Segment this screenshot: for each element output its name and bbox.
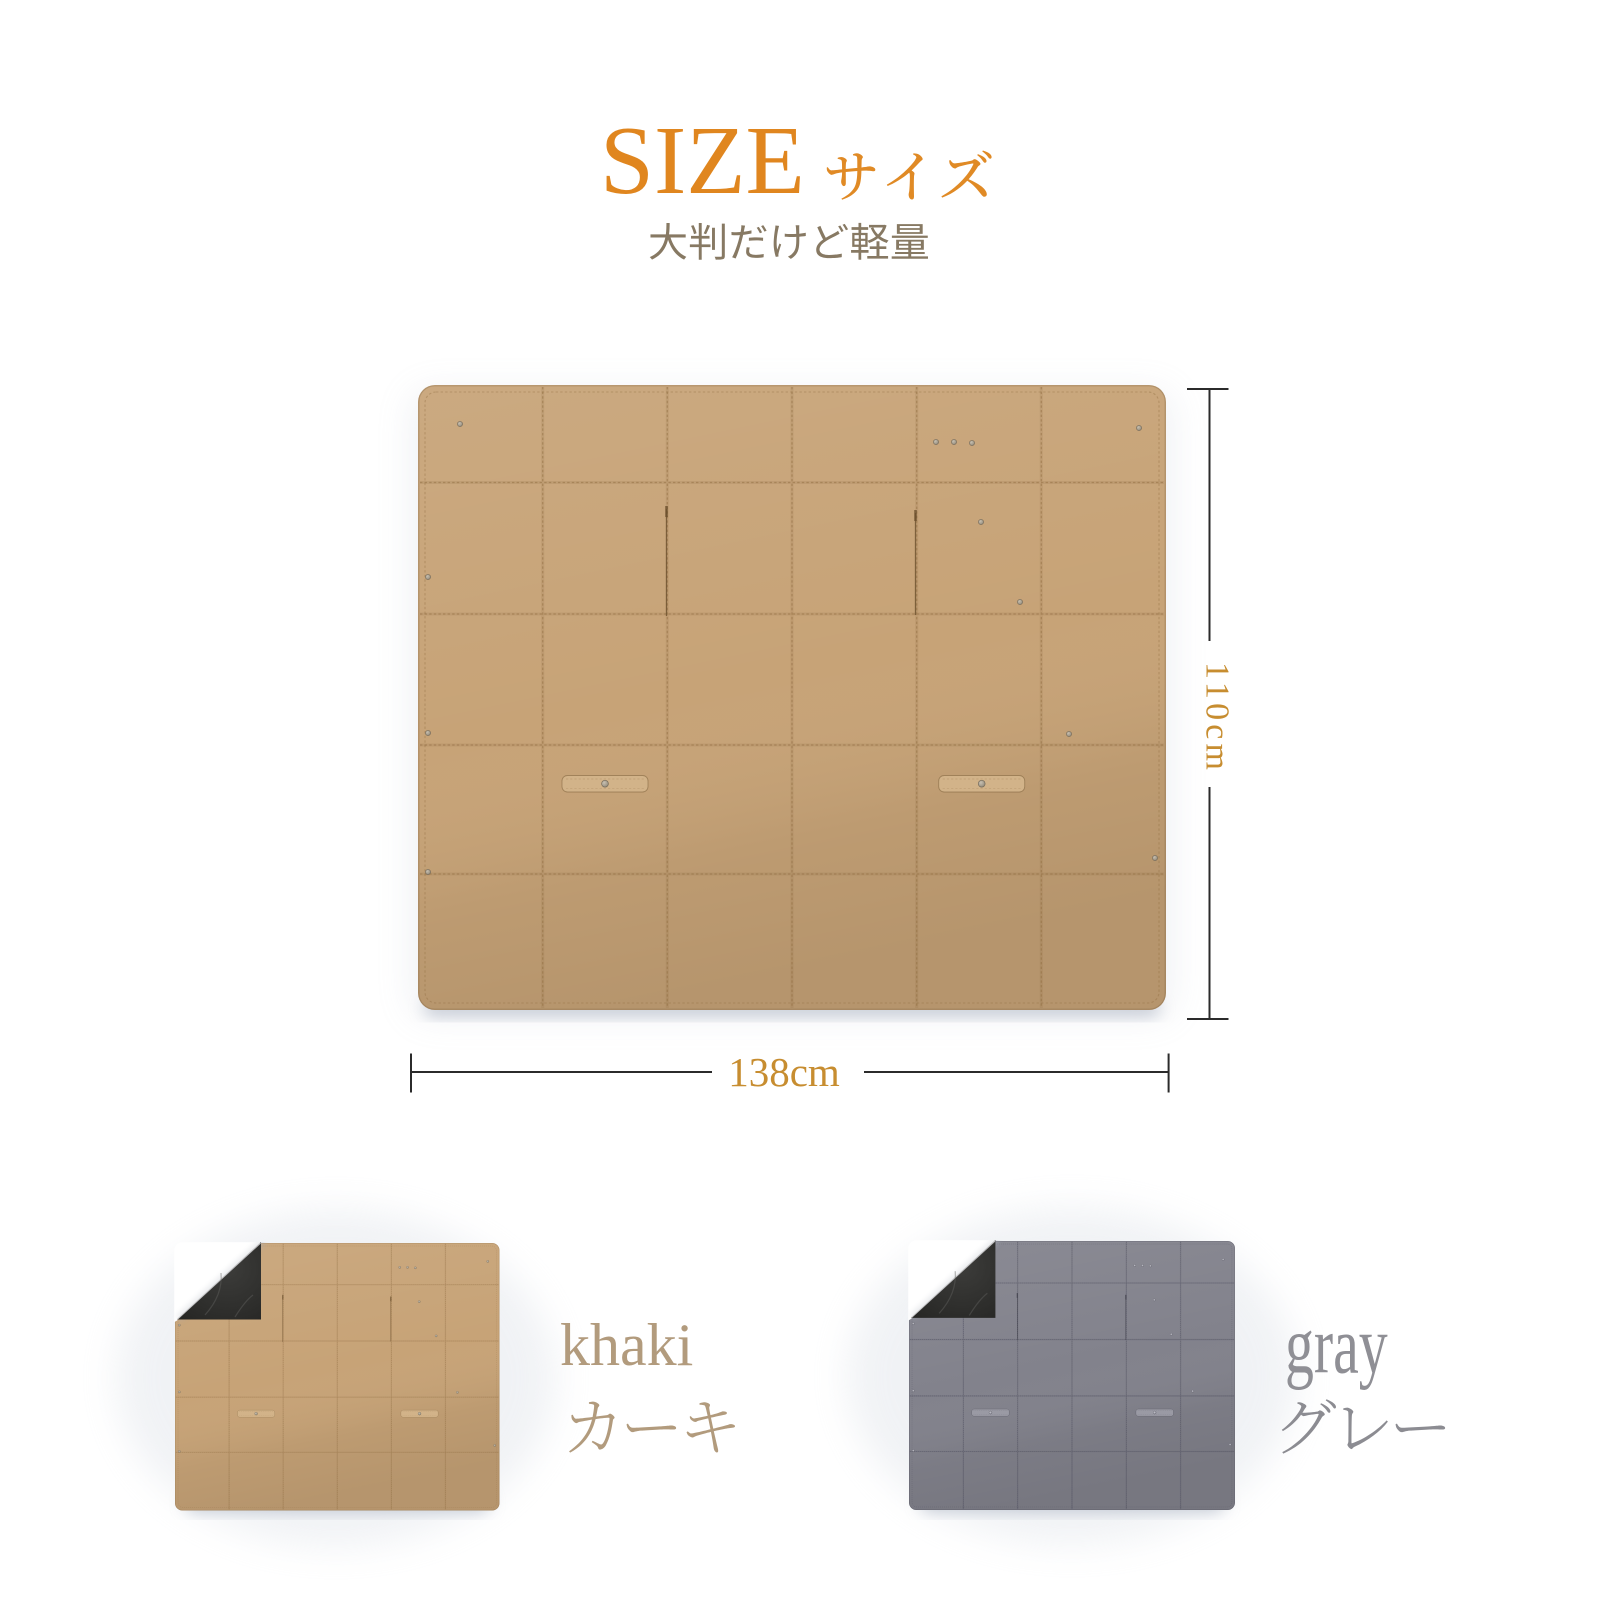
svg-text:110cm: 110cm <box>1199 662 1236 770</box>
svg-text:gray: gray <box>1285 1301 1388 1391</box>
svg-text:khaki: khaki <box>560 1312 693 1378</box>
svg-text:SIZE: SIZE <box>600 107 805 214</box>
svg-text:138cm: 138cm <box>728 1049 840 1095</box>
